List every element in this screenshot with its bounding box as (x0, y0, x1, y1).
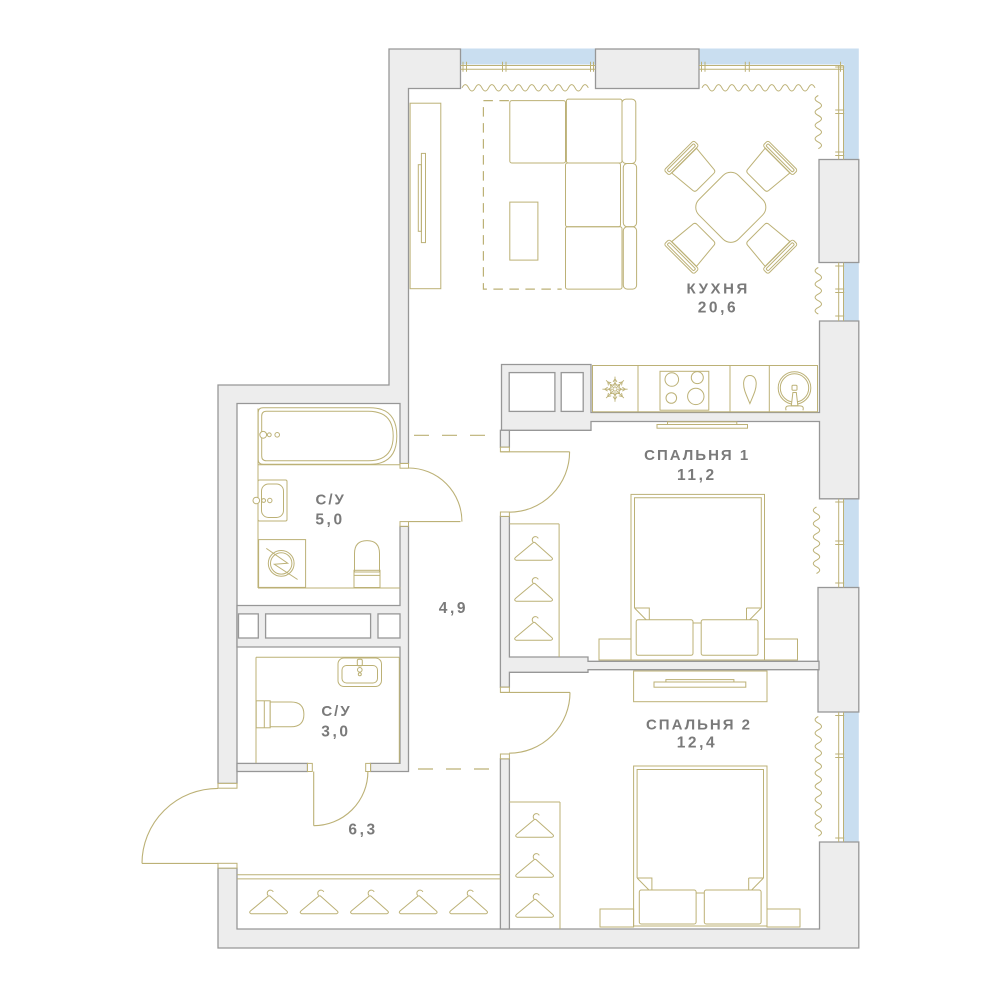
svg-text:СПАЛЬНЯ 2: СПАЛЬНЯ 2 (646, 717, 752, 734)
svg-text:3,0: 3,0 (321, 723, 350, 740)
svg-text:20,6: 20,6 (698, 299, 739, 316)
svg-text:12,4: 12,4 (677, 735, 718, 752)
svg-text:КУХНЯ: КУХНЯ (686, 280, 749, 297)
svg-text:С/У: С/У (316, 492, 346, 509)
svg-text:4,9: 4,9 (439, 600, 468, 617)
svg-text:6,3: 6,3 (348, 821, 377, 838)
svg-text:11,2: 11,2 (677, 467, 717, 484)
svg-text:5,0: 5,0 (315, 512, 344, 529)
svg-text:С/У: С/У (321, 703, 351, 720)
svg-text:СПАЛЬНЯ 1: СПАЛЬНЯ 1 (644, 447, 750, 464)
